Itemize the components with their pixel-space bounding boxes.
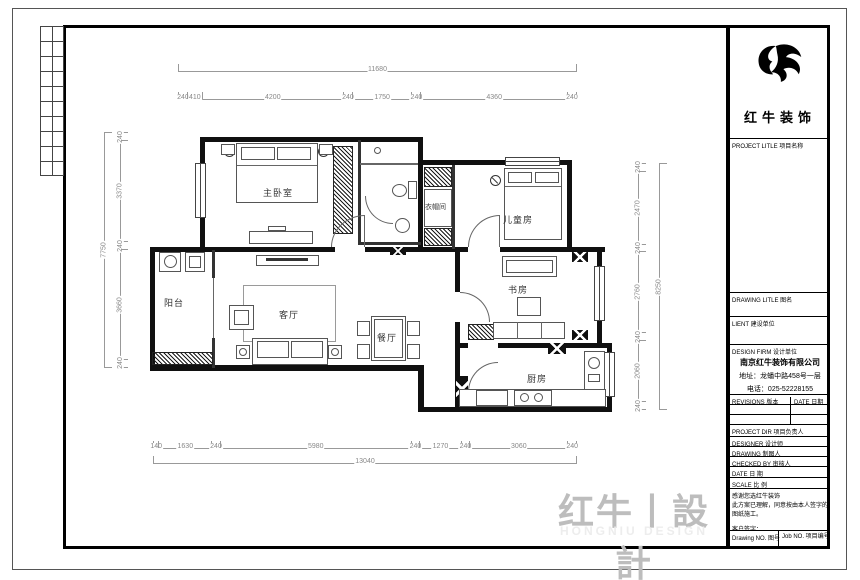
field-project-director: PROJECT DIR 项目负责人 [730,424,830,436]
dim-segment: 2470 [639,171,646,244]
note-block: 感谢您选红牛装饰 此方案已理解，同意按由本人签字的图纸施工。 客户签字： [730,488,830,530]
tv-screen [266,258,308,261]
drawing-number-row: Drawing NO. 图号 Job NO. 项目编号 [730,530,830,549]
field-drafter: DRAWING 制图人 [730,446,830,456]
speaker-cone [239,348,247,356]
dim-segment: 4200 [202,92,343,99]
dim-top-overall: 11680 [178,64,577,72]
nightstand [221,144,235,155]
dim-segment: 240 [211,441,220,448]
dim-bottom-segments: 1401630240598024012702403060240 [153,441,577,449]
light-symbol-icon [490,175,501,186]
bath-partition-line [360,163,418,165]
job-no-label: Job NO. 项目编号 [778,531,830,549]
dim-segment: 240 [639,332,646,340]
dim-value: 1630 [177,443,195,450]
note-line-2: 此方案已理解，同意按由本人签字的图纸施工。 [732,500,828,518]
wall [567,160,572,252]
dim-value: 4200 [264,94,282,101]
dim-value: 410 [188,94,202,101]
dining-chair [407,321,420,336]
field-designer: DESIGNER 设计师 [730,436,830,446]
bed-line [505,186,561,187]
wall [452,165,455,249]
brand-name: 红牛装饰 [730,107,830,126]
drawing-sheet: 主卧室 衣帽间 儿童房 书房 阳台 客厅 餐厅 厨房 11680 2404104… [0,0,860,580]
side-table-inner [234,310,249,325]
dim-segment: 240 [639,244,646,252]
wall [150,365,424,371]
wall [365,247,392,252]
dim-segment: 11680 [178,64,577,71]
room-label-closet: 衣帽间 [425,202,446,212]
balcony-rail-hatch [152,352,213,365]
dim-segment: 3060 [469,441,567,448]
speaker-cone [331,348,339,356]
dim-segment: 410 [187,92,202,99]
dim-right-segments: 240247024027602402060240 [638,163,646,410]
toilet-tank [408,181,417,199]
dim-value: 1750 [373,94,391,101]
dim-segment: 13040 [153,456,577,463]
revisions-header-row: REVISIONS 版本 DATE 日期 [730,394,830,404]
dim-left-segments: 24033702403660240 [120,132,128,368]
dresser [249,231,313,244]
room-label-kids: 儿童房 [503,213,533,226]
pillow [535,172,559,183]
wall [566,343,612,348]
bed-line [237,165,317,166]
row-divider [790,405,791,414]
dining-chair [357,344,370,359]
wall [498,343,548,348]
dim-top-segments: 240410420024017502404360240 [178,92,577,100]
door-leaf [499,215,500,247]
dim-value: 13040 [354,458,375,465]
dim-value: 240 [635,399,642,413]
dim-segment: 3660 [121,249,128,359]
dim-value: 4360 [485,94,503,101]
dim-segment: 240 [639,401,646,410]
dim-value: 8250 [656,278,663,296]
wall [500,247,572,252]
dim-segment: 240 [178,92,187,99]
column-xbox [548,343,566,354]
dim-segment: 240 [639,163,646,171]
window [594,266,605,321]
revisions-empty-row [730,414,830,424]
dim-segment: 240 [411,92,420,99]
burner [520,393,529,402]
column-xbox [572,252,588,262]
sliding-door-line [213,278,214,338]
field-scale: SCALE 比 例 [730,477,830,488]
drawing-no-label: Drawing NO. 图号 [732,536,780,542]
dim-segment: 8250 [660,163,667,410]
wall [200,137,423,142]
revision-strip [40,26,64,176]
dim-segment: 240 [411,441,420,448]
dim-segment: 2760 [639,251,646,332]
shower-head [374,147,381,154]
dim-segment: 1270 [419,441,460,448]
dim-segment: 240 [121,241,128,249]
room-label-study: 书房 [508,283,528,296]
dim-value: 240 [565,443,579,450]
burner [534,393,543,402]
field-client: LIENT 建设单位 [730,316,830,344]
sofa-cushion [291,341,323,358]
dim-segment: 240 [121,359,128,368]
dim-value: 7750 [101,241,108,259]
window [195,163,206,218]
company-address: 地址：龙蟠中路458号一层 [730,371,830,381]
sofa-cushion [257,341,289,358]
dining-chair [407,344,420,359]
wall [200,247,335,252]
closet-rack-hatch [424,167,452,187]
wall [420,247,468,252]
dim-right-overall: 8250 [659,163,667,410]
company-name: 南京红牛装饰有限公司 [730,357,830,368]
company-phone: 电话：025-52228155 [730,384,830,394]
dim-segment: 240 [567,92,577,99]
dim-value: 2470 [635,199,642,217]
desk [493,322,565,339]
dim-segment: 4360 [420,92,567,99]
dim-segment: 3370 [121,140,128,241]
dim-left-overall: 7750 [104,132,112,368]
room-label-living: 客厅 [279,308,299,321]
dim-value: 3660 [117,296,124,314]
dim-segment: 2060 [639,340,646,401]
wall [358,242,421,245]
dim-value: 2760 [635,284,642,302]
dim-value: 3060 [510,443,528,450]
dim-value: 11680 [367,66,388,73]
date-col-label: DATE 日期 [790,397,823,404]
dim-value: 2060 [635,362,642,380]
door-leaf [364,215,365,247]
dim-value: 240 [565,94,579,101]
column-xbox [572,330,588,340]
daybed-cushion [506,260,553,273]
dim-bottom-overall: 13040 [153,456,577,464]
dresser-item [268,226,286,231]
closet-rack-hatch [424,228,452,246]
room-label-kitchen: 厨房 [527,372,547,385]
column-xbox [390,247,406,255]
bull-logo-icon [750,41,810,87]
dim-segment: 7750 [105,132,112,368]
wall [418,407,612,412]
field-project-title: PROJECT LITLE 项目名称 [730,138,830,292]
dim-segment: 1630 [158,441,211,448]
title-block: 红牛装饰 PROJECT LITLE 项目名称 DRAWING LITLE 图名… [730,25,830,549]
pillow [508,172,532,183]
dim-value: 1270 [432,443,450,450]
toilet-bowl [392,184,407,197]
nightstand [319,144,333,155]
laundry-sink-inner [189,256,201,268]
sink-basin [588,357,600,369]
strip-divider [52,27,53,175]
window [505,157,560,166]
wash-basin [395,218,410,233]
field-checker: CHECKED BY 审核人 [730,456,830,466]
kitchen-cabinet [476,390,508,406]
dim-segment: 240 [461,441,470,448]
dim-value: 240 [117,357,124,371]
note-line-1: 感谢您选红牛装饰 [732,491,828,500]
dim-segment: 1750 [352,92,411,99]
dim-segment: 240 [121,132,128,140]
dim-value: 3370 [117,182,124,200]
bookshelf-hatch [468,324,494,340]
wall [455,343,468,348]
dim-segment: 240 [567,441,577,448]
pillow [241,147,275,160]
row-divider [790,415,791,424]
sink-drain [588,374,600,382]
wall [455,247,460,292]
room-label-dining: 餐厅 [377,331,397,344]
dim-value: 5980 [307,443,325,450]
wall [212,250,215,278]
desk-divider [541,322,542,339]
room-label-balcony: 阳台 [164,296,184,309]
dim-segment: 5980 [220,441,411,448]
revisions-empty-row [730,404,830,414]
wall [418,137,423,252]
field-date: DATE 日 期 [730,466,830,477]
dim-segment: 240 [343,92,352,99]
pillow [277,147,311,160]
field-drawing-title: DRAWING LITLE 图名 [730,292,830,316]
brand-watermark-en: HONGNIU DESIGN [548,524,720,538]
sheet-main-frame [63,25,830,549]
wall [418,365,424,412]
wall [406,247,420,252]
dining-chair [357,321,370,336]
room-label-master: 主卧室 [263,186,293,199]
desk-chair [517,297,541,316]
desk-divider [517,322,518,339]
washer-drum [164,255,177,268]
